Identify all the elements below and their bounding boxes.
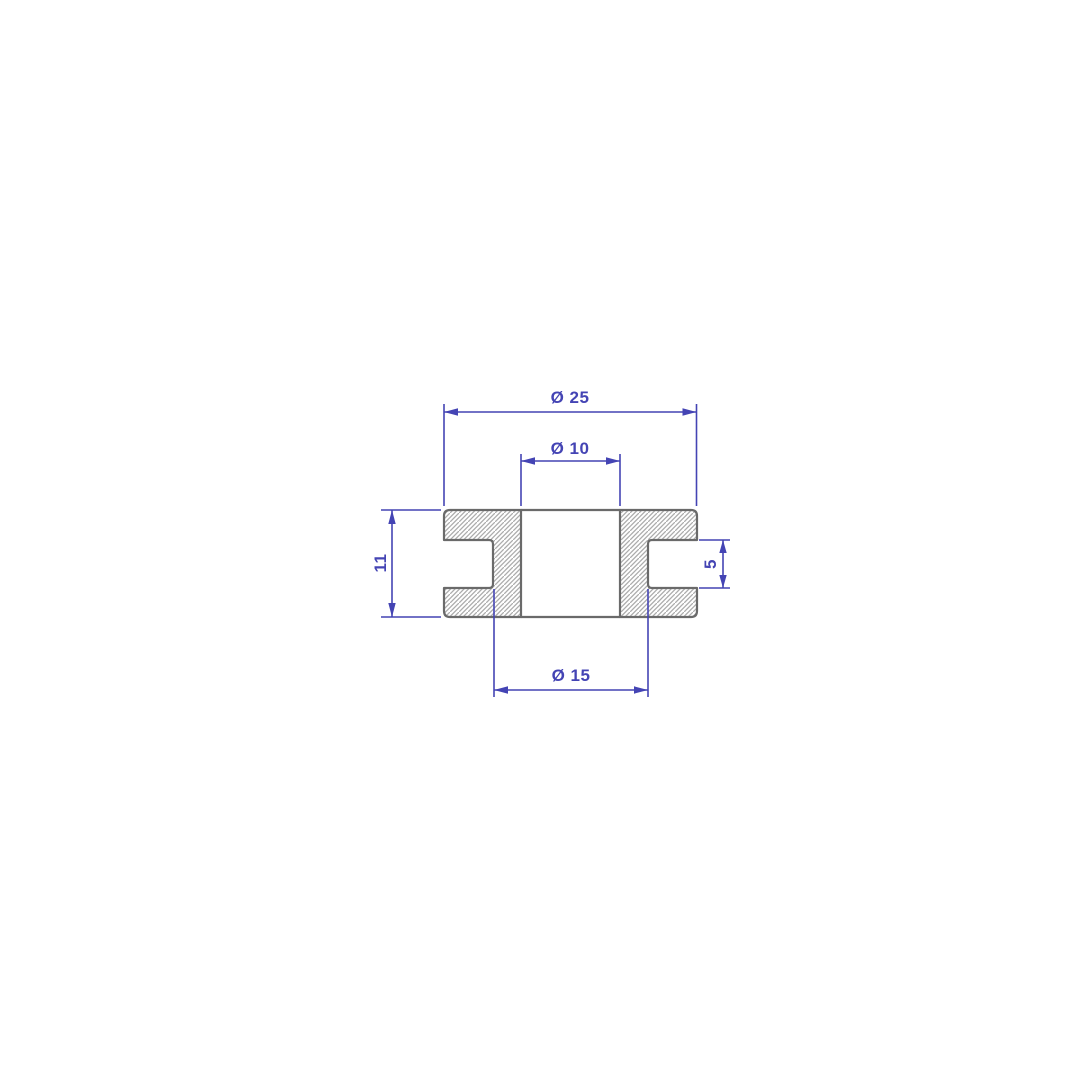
- arrowhead-up: [388, 510, 395, 524]
- groove-width-label: 5: [701, 559, 720, 569]
- arrowhead-left: [521, 457, 535, 464]
- left-flange-section: [444, 510, 521, 617]
- bore-diameter-label: Ø 10: [551, 439, 590, 458]
- arrowhead-right: [606, 457, 620, 464]
- arrowhead-left: [444, 408, 458, 415]
- drawing-canvas: Ø 25 Ø 10 Ø 15 11: [0, 0, 1090, 1090]
- arrowhead-down: [388, 603, 395, 617]
- part-section: [444, 510, 697, 617]
- arrowhead-down: [719, 575, 726, 588]
- groove-diameter-label: Ø 15: [552, 666, 591, 685]
- outer-diameter-label: Ø 25: [551, 388, 590, 407]
- dimension-bore-diameter: Ø 10: [521, 439, 620, 506]
- technical-drawing: Ø 25 Ø 10 Ø 15 11: [0, 0, 1090, 1090]
- arrowhead-left: [494, 686, 508, 693]
- height-label: 11: [371, 554, 390, 573]
- arrowhead-right: [683, 408, 697, 415]
- arrowhead-up: [719, 540, 726, 553]
- arrowhead-right: [634, 686, 648, 693]
- right-flange-section: [620, 510, 697, 617]
- dimension-height: 11: [371, 510, 441, 617]
- dimension-groove-width: 5: [699, 540, 730, 588]
